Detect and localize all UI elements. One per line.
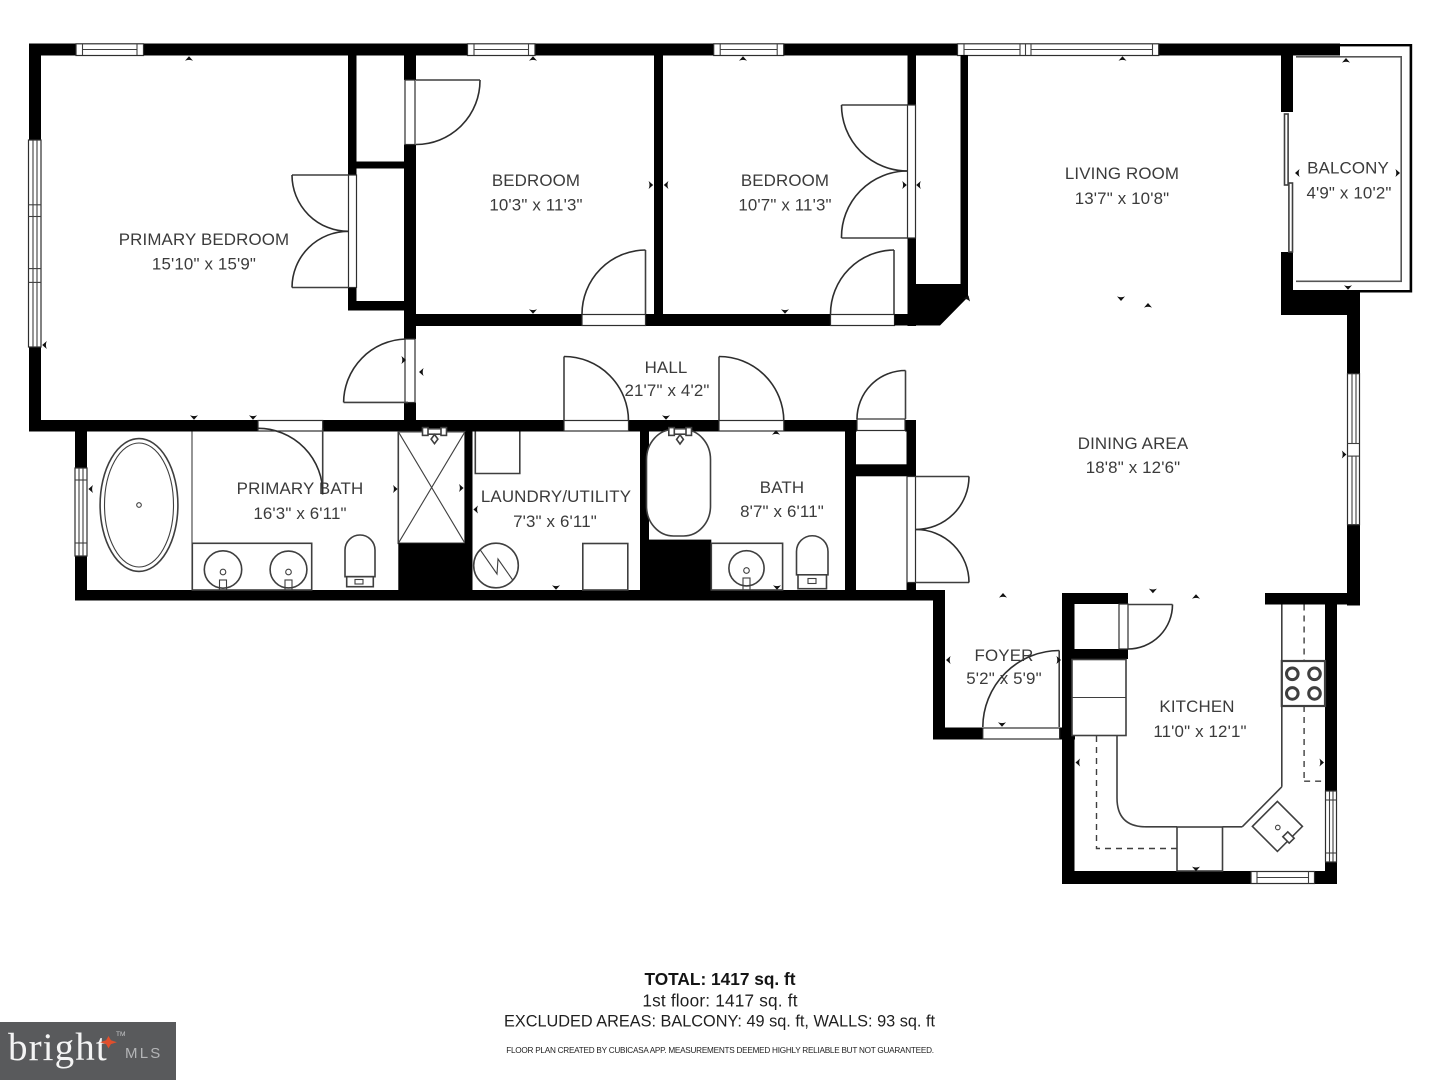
svg-text:5'2" x 5'9": 5'2" x 5'9" xyxy=(966,669,1042,688)
svg-text:18'8" x 12'6": 18'8" x 12'6" xyxy=(1086,458,1181,477)
svg-text:BEDROOM: BEDROOM xyxy=(741,171,829,190)
svg-text:EXCLUDED AREAS: BALCONY: 49 sq: EXCLUDED AREAS: BALCONY: 49 sq. ft, WALL… xyxy=(504,1013,935,1031)
svg-text:PRIMARY BEDROOM: PRIMARY BEDROOM xyxy=(119,230,290,249)
svg-text:PRIMARY BATH: PRIMARY BATH xyxy=(237,479,364,498)
svg-text:8'7" x 6'11": 8'7" x 6'11" xyxy=(740,502,824,521)
svg-text:bright: bright xyxy=(8,1026,108,1069)
svg-text:LIVING ROOM: LIVING ROOM xyxy=(1065,164,1179,183)
svg-text:DINING AREA: DINING AREA xyxy=(1078,434,1189,453)
svg-text:MLS: MLS xyxy=(125,1045,162,1062)
svg-text:13'7" x 10'8": 13'7" x 10'8" xyxy=(1075,189,1170,208)
svg-text:HALL: HALL xyxy=(645,358,688,377)
svg-text:11'0" x 12'1": 11'0" x 12'1" xyxy=(1153,722,1246,741)
svg-text:FLOOR PLAN CREATED BY CUBICASA: FLOOR PLAN CREATED BY CUBICASA APP. MEAS… xyxy=(506,1046,934,1055)
svg-text:TM: TM xyxy=(116,1031,125,1038)
svg-text:BEDROOM: BEDROOM xyxy=(492,171,580,190)
svg-text:BATH: BATH xyxy=(760,478,804,497)
svg-text:LAUNDRY/UTILITY: LAUNDRY/UTILITY xyxy=(481,487,631,506)
svg-text:1st floor: 1417 sq. ft: 1st floor: 1417 sq. ft xyxy=(642,991,797,1011)
svg-text:FOYER: FOYER xyxy=(975,646,1034,665)
svg-text:10'7" x 11'3": 10'7" x 11'3" xyxy=(738,196,831,215)
svg-text:TOTAL: 1417 sq. ft: TOTAL: 1417 sq. ft xyxy=(644,969,795,989)
svg-text:BALCONY: BALCONY xyxy=(1307,159,1389,178)
svg-text:16'3" x 6'11": 16'3" x 6'11" xyxy=(253,504,346,523)
svg-text:15'10" x 15'9": 15'10" x 15'9" xyxy=(152,255,256,274)
svg-text:KITCHEN: KITCHEN xyxy=(1159,697,1234,716)
svg-text:7'3" x 6'11": 7'3" x 6'11" xyxy=(513,512,597,531)
svg-text:21'7" x 4'2": 21'7" x 4'2" xyxy=(624,381,709,400)
svg-text:10'3" x 11'3": 10'3" x 11'3" xyxy=(489,196,582,215)
svg-text:4'9" x 10'2": 4'9" x 10'2" xyxy=(1306,184,1391,203)
